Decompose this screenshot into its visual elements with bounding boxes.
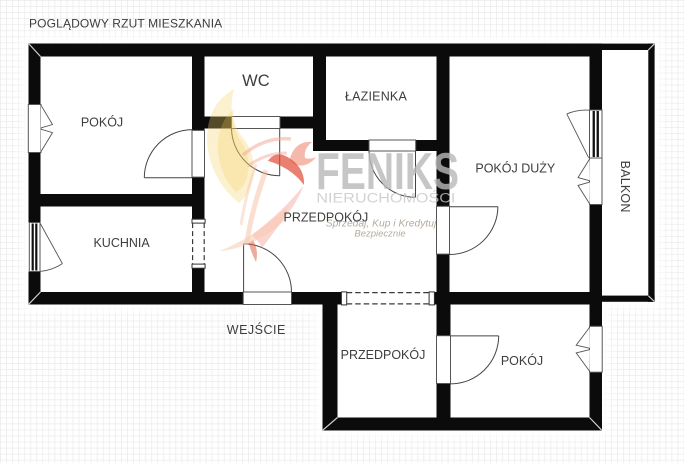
svg-text:ŁAZIENKA: ŁAZIENKA: [345, 90, 407, 104]
svg-text:WEJŚCIE: WEJŚCIE: [227, 322, 286, 337]
svg-text:Bezpiecznie: Bezpiecznie: [354, 229, 405, 240]
svg-text:NIERUCHOMOŚCI: NIERUCHOMOŚCI: [316, 190, 455, 205]
svg-text:POKÓJ: POKÓJ: [81, 115, 123, 130]
svg-text:BALKON: BALKON: [618, 161, 632, 213]
svg-text:POKÓJ DUŻY: POKÓJ DUŻY: [475, 160, 556, 175]
svg-text:POGLĄDOWY RZUT MIESZKANIA: POGLĄDOWY RZUT MIESZKANIA: [29, 16, 222, 30]
svg-text:POKÓJ: POKÓJ: [501, 353, 543, 368]
svg-text:WC: WC: [242, 72, 270, 90]
svg-text:PRZEDPOKÓJ: PRZEDPOKÓJ: [284, 209, 369, 224]
svg-text:KUCHNIA: KUCHNIA: [93, 236, 150, 250]
svg-text:PRZEDPOKÓJ: PRZEDPOKÓJ: [341, 347, 426, 362]
